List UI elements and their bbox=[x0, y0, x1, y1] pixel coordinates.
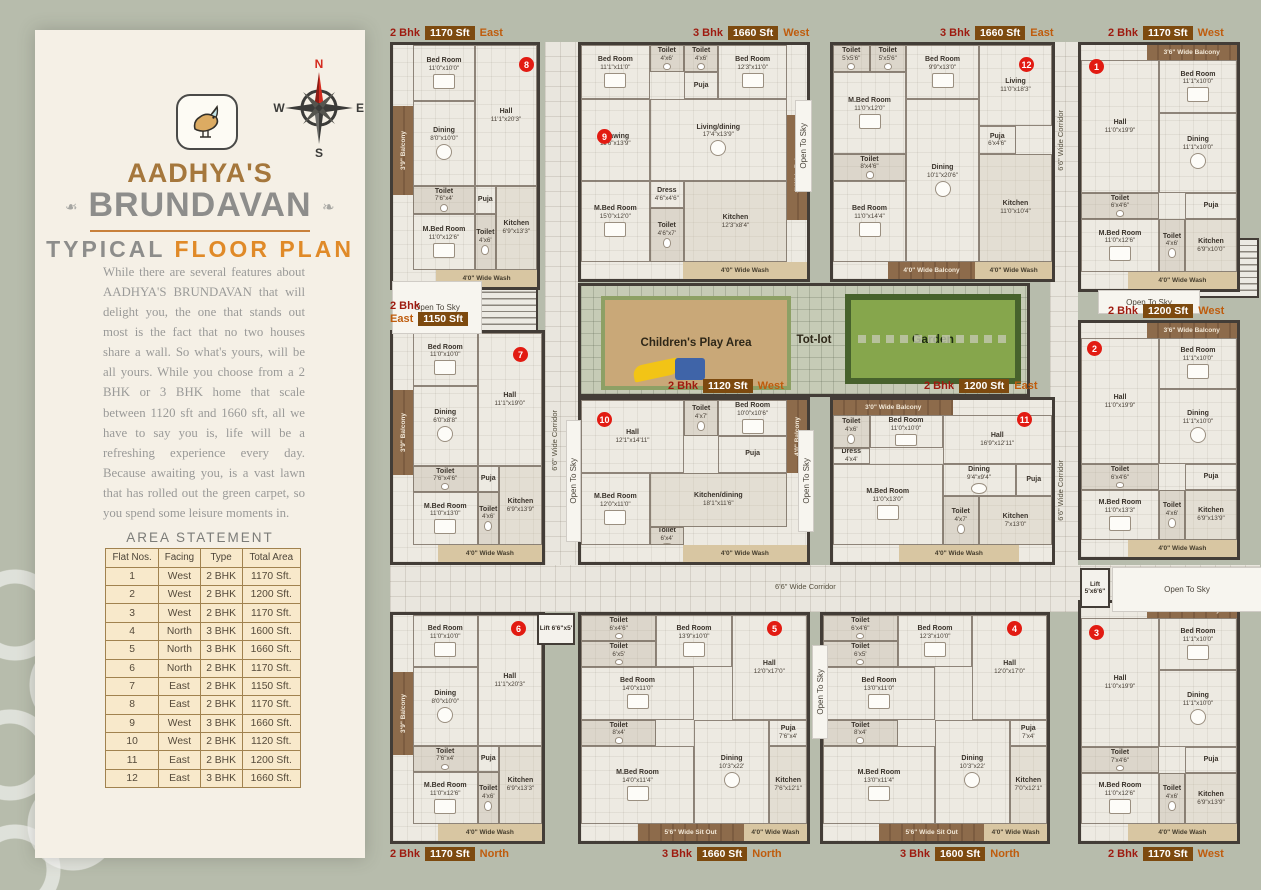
table-cell: 1200 Sft. bbox=[242, 751, 301, 769]
table-cell: 2 BHK bbox=[200, 677, 242, 695]
room-toilet: Toilet4'6"x7' bbox=[650, 208, 684, 262]
strip-label: 4'0" Wide Wash bbox=[992, 829, 1040, 836]
wash-strip: 4'0" Wide Wash bbox=[683, 262, 807, 279]
room-dining: Dining8'0"x10'0" bbox=[413, 667, 478, 745]
room-dimensions: 8'0"x10'0" bbox=[430, 135, 458, 142]
room-dimensions: 11'0"x12'6" bbox=[430, 790, 461, 797]
room-name: Puja bbox=[1026, 476, 1041, 484]
unit-area-badge: 1660 Sft bbox=[697, 847, 747, 861]
room-dimensions: 6'x4'6" bbox=[1111, 474, 1129, 481]
room-name: Dining bbox=[721, 755, 743, 763]
room-name: Puja bbox=[745, 450, 760, 458]
room-name: Toilet bbox=[860, 156, 878, 164]
room-toilet: Toilet4'x6' bbox=[1159, 219, 1185, 272]
flat-unit-8: 3'9" Balcony4'0" Wide WashBed Room11'0"x… bbox=[390, 42, 540, 290]
room-puja: Puja bbox=[718, 436, 787, 472]
room-dimensions: 11'0"x12'6" bbox=[429, 234, 460, 241]
room-dimensions: 4'x6' bbox=[482, 793, 495, 800]
table-cell: 2 BHK bbox=[200, 696, 242, 714]
room-name: Toilet bbox=[479, 506, 497, 514]
room-dimensions: 7'0"x12'1" bbox=[1015, 785, 1043, 792]
flat-unit-5: 5'6" Wide Sit Out4'0" Wide WashToilet6'x… bbox=[578, 612, 810, 844]
room-bed-room: Bed Room11'0"x10'0" bbox=[413, 615, 478, 667]
room-dimensions: 11'0"x12'6" bbox=[1105, 237, 1136, 244]
room-name: Bed Room bbox=[917, 625, 952, 633]
room-dimensions: 11'0"x12'6" bbox=[1105, 790, 1136, 797]
unit-label-7: 2 BhkEast1150 Sft bbox=[390, 300, 468, 326]
room-toilet: Toilet6'x4' bbox=[650, 527, 684, 545]
room-dimensions: 8'x4' bbox=[612, 729, 625, 736]
table-row: 1West2 BHK1170 Sft. bbox=[106, 567, 301, 585]
garden: Garden bbox=[845, 294, 1021, 384]
room-dimensions: 11'1"x10'0" bbox=[1183, 636, 1214, 643]
flat-unit-3: 3'6" Wide Balcony4'0" Wide WashHall11'0"… bbox=[1078, 600, 1240, 844]
room-bed-room: Bed Room10'0"x10'6" bbox=[718, 400, 787, 436]
room-name: Kitchen bbox=[1198, 791, 1224, 799]
room-name: Toilet bbox=[436, 468, 454, 476]
table-row: 6North2 BHK1170 Sft. bbox=[106, 659, 301, 677]
room-dimensions: 11'0"x13'0" bbox=[430, 510, 461, 517]
unit-label-6: 2 Bhk1170 SftNorth bbox=[390, 847, 509, 861]
room-name: Living/dining bbox=[697, 124, 741, 132]
room-name: Kitchen bbox=[1003, 200, 1029, 208]
table-row: 7East2 BHK1150 Sft. bbox=[106, 677, 301, 695]
unit-bhk: 3 Bhk bbox=[662, 848, 692, 860]
table-row: 8East2 BHK1170 Sft. bbox=[106, 696, 301, 714]
room-puja: Puja7'x4' bbox=[1010, 720, 1047, 746]
room-name: Bed Room bbox=[428, 344, 463, 352]
table-cell: 3 BHK bbox=[200, 622, 242, 640]
room-name: Puja bbox=[481, 475, 496, 483]
room-dimensions: 7'x4'6" bbox=[1111, 757, 1129, 764]
table-cell: West bbox=[159, 733, 200, 751]
unit-facing: West bbox=[1198, 305, 1224, 317]
room-drawing: Drawing11'6"x13'9" bbox=[581, 99, 650, 180]
strip-label: 5'6" Wide Sit Out bbox=[906, 829, 958, 836]
room-toilet: Toilet4'x7' bbox=[684, 400, 718, 436]
strip-label: 3'9" Balcony bbox=[400, 694, 407, 733]
room-name: Toilet bbox=[658, 222, 676, 230]
table-header-row: Flat Nos.FacingTypeTotal Area bbox=[106, 549, 301, 568]
table-row: 3West2 BHK1170 Sft. bbox=[106, 604, 301, 622]
childrens-play-area: Children's Play Area bbox=[601, 296, 791, 390]
strip-label: 4'0" Wide Wash bbox=[990, 267, 1038, 274]
strip-label: 4'0" Wide Wash bbox=[1158, 277, 1206, 284]
room-name: Bed Room bbox=[735, 402, 770, 410]
table-row: 4North3 BHK1600 Sft. bbox=[106, 622, 301, 640]
wash-strip: 4'0" Wide Wash bbox=[899, 545, 1019, 562]
table-cell: 2 BHK bbox=[200, 604, 242, 622]
wash-strip: 4'0" Wide Wash bbox=[1128, 824, 1237, 841]
table-cell: 2 bbox=[106, 586, 159, 604]
unit-facing: North bbox=[480, 848, 509, 860]
description-paragraph: While there are several features about A… bbox=[103, 262, 305, 523]
unit-bhk: 3 Bhk bbox=[900, 848, 930, 860]
room-m-bed-room: M.Bed Room15'0"x12'0" bbox=[581, 181, 650, 262]
room-dimensions: 9'4"x9'4" bbox=[967, 474, 991, 481]
unit-facing: North bbox=[752, 848, 781, 860]
room-name: Toilet bbox=[658, 527, 676, 535]
room-hall: Hall11'0"x19'9" bbox=[1081, 60, 1159, 193]
strip-label: 4'0" Wide Balcony bbox=[903, 267, 959, 274]
room-toilet: Toilet4'x6' bbox=[1159, 490, 1185, 541]
table-header-cell: Total Area bbox=[242, 549, 301, 568]
room-name: Puja bbox=[478, 196, 493, 204]
room-name: M.Bed Room bbox=[616, 769, 659, 777]
page-title: TYPICAL FLOOR PLAN bbox=[35, 236, 365, 263]
area-statement-title: AREA STATEMENT bbox=[35, 530, 365, 545]
table-cell: 7 bbox=[106, 677, 159, 695]
table-cell: 2 BHK bbox=[200, 586, 242, 604]
table-cell: 1170 Sft. bbox=[242, 567, 301, 585]
room-name: Bed Room bbox=[861, 677, 896, 685]
unit-label-5: 3 Bhk1660 SftNorth bbox=[662, 847, 782, 861]
strip-label: 5'6" Wide Sit Out bbox=[664, 829, 716, 836]
room-dimensions: 4'6"x4'6" bbox=[655, 195, 679, 202]
flat-number-badge: 1 bbox=[1089, 59, 1104, 74]
room-name: Dining bbox=[968, 466, 990, 474]
divider bbox=[90, 230, 310, 232]
room-name: Toilet bbox=[435, 188, 453, 196]
room-name: Toilet bbox=[692, 47, 710, 55]
room-dimensions: 6'9"x13'9" bbox=[1197, 515, 1225, 522]
brand-name-main: ❧ BRUNDAVAN ❧ bbox=[35, 186, 365, 225]
room-name: Kitchen bbox=[1198, 238, 1224, 246]
room-toilet: Toilet7'6"x4'6" bbox=[413, 466, 478, 493]
room-dimensions: 4'x6' bbox=[845, 426, 858, 433]
room-bed-room: Bed Room11'0"x10'0" bbox=[413, 45, 475, 101]
flat-number-badge: 12 bbox=[1019, 57, 1034, 72]
room-name: Kitchen/dining bbox=[694, 492, 743, 500]
flat-unit-7: 3'9" Balcony4'0" Wide WashBed Room11'0"x… bbox=[390, 330, 545, 565]
table-row: 10West2 BHK1120 Sft. bbox=[106, 733, 301, 751]
room-dimensions: 4'x7' bbox=[954, 516, 967, 523]
unit-label-8: 2 Bhk1170 SftEast bbox=[390, 26, 503, 40]
unit-facing: West bbox=[783, 27, 809, 39]
table-cell: 1 bbox=[106, 567, 159, 585]
room-dimensions: 6'x4'6" bbox=[988, 140, 1006, 147]
table-cell: 2 BHK bbox=[200, 733, 242, 751]
room-puja: Puja bbox=[1016, 464, 1053, 497]
room-dimensions: 14'0"x11'4" bbox=[622, 777, 653, 784]
flat-number-badge: 11 bbox=[1017, 412, 1032, 427]
unit-bhk: 2 Bhk bbox=[1108, 305, 1138, 317]
room-toilet: Toilet7'x4'6" bbox=[1081, 747, 1159, 773]
room-toilet: Toilet6'x5' bbox=[581, 641, 656, 667]
unit-bhk: 3 Bhk bbox=[940, 27, 970, 39]
room-dimensions: 12'0"x11'0" bbox=[600, 501, 631, 508]
unit-bhk: 2 Bhk bbox=[668, 380, 698, 392]
table-cell: West bbox=[159, 586, 200, 604]
strip-label: 4'0" Wide Wash bbox=[721, 550, 769, 557]
table-cell: 3 BHK bbox=[200, 769, 242, 787]
room-name: Bed Room bbox=[620, 677, 655, 685]
room-dimensions: 6'x4' bbox=[661, 535, 674, 542]
room-dimensions: 11'0"x18'3" bbox=[1000, 86, 1031, 93]
room-name: Bed Room bbox=[1181, 628, 1216, 636]
room-name: Hall bbox=[626, 429, 639, 437]
table-cell: 1120 Sft. bbox=[242, 733, 301, 751]
flat-unit-1: 3'6" Wide Balcony4'0" Wide WashHall11'0"… bbox=[1078, 42, 1240, 292]
svg-text:E: E bbox=[356, 101, 364, 115]
table-cell: 1660 Sft. bbox=[242, 714, 301, 732]
room-toilet: Toilet7'6"x4' bbox=[413, 746, 478, 772]
room-dining: Dining8'0"x10'0" bbox=[413, 101, 475, 185]
table-cell: 3 BHK bbox=[200, 641, 242, 659]
room-dimensions: 11'1"x20'3" bbox=[491, 116, 522, 123]
table-header-cell: Flat Nos. bbox=[106, 549, 159, 568]
room-name: Bed Room bbox=[735, 56, 770, 64]
room-name: Toilet bbox=[1163, 785, 1181, 793]
room-name: Bed Room bbox=[889, 417, 924, 425]
room-name: Hall bbox=[1114, 119, 1127, 127]
room-name: M.Bed Room bbox=[424, 782, 467, 790]
unit-label-1: 2 Bhk1170 SftWest bbox=[1108, 26, 1224, 40]
room-name: Toilet bbox=[1163, 502, 1181, 510]
room-m-bed-room: M.Bed Room11'0"x12'6" bbox=[1081, 773, 1159, 825]
room-dimensions: 11'0"x10'0" bbox=[430, 351, 461, 358]
room-kitchen: Kitchen12'3"x8'4" bbox=[684, 181, 787, 262]
room-dimensions: 6'x4'6" bbox=[851, 625, 869, 632]
room-name: Toilet bbox=[476, 229, 494, 237]
room-dimensions: 4'x6' bbox=[1166, 510, 1179, 517]
room-name: Dining bbox=[1187, 410, 1209, 418]
lift-b: Lift 5'x6'6" bbox=[1080, 568, 1110, 608]
unit-facing: North bbox=[990, 848, 1019, 860]
table-cell: 2 BHK bbox=[200, 567, 242, 585]
table-row: 2West2 BHK1200 Sft. bbox=[106, 586, 301, 604]
balcony-strip: 4'0" Wide Balcony bbox=[888, 262, 976, 279]
table-cell: 1660 Sft. bbox=[242, 769, 301, 787]
room-name: Puja bbox=[1204, 473, 1219, 481]
room-name: Toilet bbox=[851, 617, 869, 625]
room-puja: Puja6'x4'6" bbox=[979, 126, 1016, 153]
table-cell: 10 bbox=[106, 733, 159, 751]
room-name: M.Bed Room bbox=[866, 488, 909, 496]
room-dimensions: 6'9"x13'9" bbox=[507, 506, 535, 513]
room-bed-room: Bed Room11'1"x11'0" bbox=[581, 45, 650, 99]
room-m-bed-room: M.Bed Room11'0"x12'0" bbox=[833, 72, 906, 153]
svg-text:W: W bbox=[273, 101, 285, 115]
room-name: Dining bbox=[433, 127, 455, 135]
unit-bhk: 2 Bhk bbox=[390, 300, 420, 312]
room-name: Puja bbox=[781, 725, 796, 733]
room-bed-room: Bed Room11'1"x10'0" bbox=[1159, 618, 1237, 670]
unit-area-badge: 1120 Sft bbox=[703, 379, 753, 393]
room-dimensions: 6'9"x13'3" bbox=[503, 228, 531, 235]
strip-label: 4'0" Wide Wash bbox=[466, 550, 514, 557]
room-dimensions: 6'0"x8'8" bbox=[433, 417, 457, 424]
unit-facing: East bbox=[1030, 27, 1053, 39]
room-name: Toilet bbox=[952, 508, 970, 516]
table-cell: 1170 Sft. bbox=[242, 696, 301, 714]
room-toilet: Toilet4'x6' bbox=[833, 415, 870, 448]
flat-number-badge: 10 bbox=[597, 412, 612, 427]
unit-area-badge: 1660 Sft bbox=[975, 26, 1025, 40]
room-name: Dining bbox=[1187, 136, 1209, 144]
room-dress: Dress4'6"x4'6" bbox=[650, 181, 684, 208]
room-dimensions: 4'x6' bbox=[1166, 240, 1179, 247]
flat-number-badge: 6 bbox=[511, 621, 526, 636]
room-dimensions: 6'9"x13'3" bbox=[507, 785, 535, 792]
room-toilet: Toilet4'x6' bbox=[650, 45, 684, 72]
room-name: Toilet bbox=[692, 405, 710, 413]
room-dimensions: 12'3"x10'0" bbox=[919, 633, 950, 640]
room-name: Puja bbox=[1204, 756, 1219, 764]
unit-area-badge: 1600 Sft bbox=[935, 847, 985, 861]
room-name: Kitchen bbox=[775, 777, 801, 785]
room-dimensions: 4'x6' bbox=[482, 513, 495, 520]
room-name: Bed Room bbox=[676, 625, 711, 633]
unit-area-badge: 1170 Sft bbox=[425, 847, 475, 861]
svg-text:N: N bbox=[315, 58, 324, 71]
room-hall: Hall11'0"x19'9" bbox=[1081, 338, 1159, 464]
room-dimensions: 13'9"x10'0" bbox=[678, 633, 709, 640]
unit-area-badge: 1170 Sft bbox=[1143, 847, 1193, 861]
wash-strip: 4'0" Wide Wash bbox=[683, 545, 807, 562]
balcony-strip: 3'9" Balcony bbox=[393, 390, 413, 475]
room-kitchen: Kitchen7'0"x12'1" bbox=[1010, 746, 1047, 824]
room-dimensions: 11'1"x10'0" bbox=[1183, 418, 1214, 425]
room-bed-room: Bed Room9'9"x13'0" bbox=[906, 45, 979, 99]
room-kitchen: Kitchen7'x13'0" bbox=[979, 496, 1052, 545]
room-name: M.Bed Room bbox=[858, 769, 901, 777]
room-dimensions: 11'0"x13'0" bbox=[872, 496, 903, 503]
unit-area-badge: 1660 Sft bbox=[728, 26, 778, 40]
table-cell: West bbox=[159, 604, 200, 622]
room-puja: Puja bbox=[1185, 747, 1237, 773]
room-name: Dining bbox=[434, 690, 456, 698]
room-name: Bed Room bbox=[852, 205, 887, 213]
open-to-sky-label: Open To Sky bbox=[566, 420, 581, 542]
unit-label-10: 2 Bhk1120 SftWest bbox=[668, 379, 784, 393]
room-dimensions: 4'x6' bbox=[1166, 793, 1179, 800]
room-name: Bed Room bbox=[427, 57, 462, 65]
room-puja: Puja bbox=[475, 186, 496, 214]
bird-logo bbox=[176, 94, 238, 150]
room-dimensions: 11'1"x11'0" bbox=[600, 64, 630, 71]
room-bed-room: Bed Room11'0"x10'0" bbox=[870, 415, 943, 448]
room-dimensions: 6'9"x10'0" bbox=[1197, 246, 1225, 253]
room-dining: Dining9'4"x9'4" bbox=[943, 464, 1016, 497]
room-dimensions: 6'x5' bbox=[854, 651, 867, 658]
unit-bhk: 2 Bhk bbox=[390, 848, 420, 860]
table-cell: 3 BHK bbox=[200, 714, 242, 732]
flat-unit-11: 3'0" Wide Balcony4'0" Wide WashToilet4'x… bbox=[830, 397, 1055, 565]
room-name: M.Bed Room bbox=[1099, 230, 1142, 238]
room-kitchen-dining: Kitchen/dining18'1"x11'6" bbox=[650, 473, 787, 527]
room-dimensions: 11'1"x10'0" bbox=[1183, 144, 1214, 151]
room-toilet: Toilet4'x6' bbox=[478, 492, 500, 545]
corridor-label: 6'6" Wide Corridor bbox=[1056, 460, 1065, 521]
room-bed-room: Bed Room12'3"x11'0" bbox=[718, 45, 787, 99]
room-m-bed-room: M.Bed Room11'0"x13'3" bbox=[1081, 490, 1159, 541]
room-toilet: Toilet5'x5'6" bbox=[870, 45, 907, 72]
room-dimensions: 12'3"x11'0" bbox=[737, 64, 768, 71]
room-dress: Dress4'x4' bbox=[833, 448, 870, 464]
table-row: 12East3 BHK1660 Sft. bbox=[106, 769, 301, 787]
balcony-strip: 3'9" Balcony bbox=[393, 106, 413, 196]
unit-area-badge: 1200 Sft bbox=[1143, 304, 1193, 318]
room-toilet: Toilet6'x4'6" bbox=[581, 615, 656, 641]
sidebar: N S W E AADHYA'S ❧ BRUNDAVAN ❧ TYPICAL F… bbox=[35, 30, 365, 858]
svg-text:S: S bbox=[315, 146, 323, 158]
room-dimensions: 7'x4' bbox=[1022, 733, 1035, 740]
room-name: M.Bed Room bbox=[1099, 782, 1142, 790]
room-dimensions: 11'1"x20'3" bbox=[494, 681, 525, 688]
table-cell: North bbox=[159, 622, 200, 640]
room-name: Toilet bbox=[658, 47, 676, 55]
room-name: Kitchen bbox=[1198, 507, 1224, 515]
balcony-strip: 5'6" Wide Sit Out bbox=[879, 824, 984, 841]
room-toilet: Toilet4'x6' bbox=[478, 772, 500, 824]
room-name: Puja bbox=[990, 133, 1005, 141]
table-cell: 1170 Sft. bbox=[242, 604, 301, 622]
room-dimensions: 11'0"x10'0" bbox=[429, 65, 460, 72]
unit-area-badge: 1170 Sft bbox=[425, 26, 475, 40]
table-row: 9West3 BHK1660 Sft. bbox=[106, 714, 301, 732]
table-cell: 4 bbox=[106, 622, 159, 640]
brand-name-top: AADHYA'S bbox=[35, 158, 365, 189]
room-name: Toilet bbox=[1163, 233, 1181, 241]
compass-icon: N S W E bbox=[273, 58, 365, 158]
room-name: Toilet bbox=[842, 418, 860, 426]
room-name: Toilet bbox=[479, 785, 497, 793]
strip-label: 3'9" Balcony bbox=[400, 131, 407, 170]
strip-label: 4'0" Wide Wash bbox=[935, 550, 983, 557]
room-dimensions: 7'6"x4'6" bbox=[433, 475, 457, 482]
room-toilet: Toilet8'x4'6" bbox=[833, 154, 906, 181]
room-toilet: Toilet4'x6' bbox=[475, 214, 496, 270]
flat-unit-4: 5'6" Wide Sit Out4'0" Wide WashToilet6'x… bbox=[820, 612, 1050, 844]
room-puja: Puja bbox=[478, 466, 500, 493]
room-name: Toilet bbox=[879, 47, 897, 55]
room-puja: Puja bbox=[1185, 193, 1237, 220]
table-row: 11East2 BHK1200 Sft. bbox=[106, 751, 301, 769]
room-name: Toilet bbox=[610, 617, 628, 625]
room-dimensions: 6'9"x13'9" bbox=[1197, 799, 1225, 806]
room-name: Dining bbox=[1187, 692, 1209, 700]
room-dimensions: 4'x6' bbox=[479, 237, 492, 244]
corridor-label: 6'6" Wide Corridor bbox=[775, 582, 836, 591]
table-cell: East bbox=[159, 769, 200, 787]
room-bed-room: Bed Room11'0"x14'4" bbox=[833, 181, 906, 262]
room-bed-room: Bed Room13'9"x10'0" bbox=[656, 615, 731, 667]
unit-bhk: 2 Bhk bbox=[390, 27, 420, 39]
room-dimensions: 10'0"x10'6" bbox=[737, 410, 768, 417]
table-cell: 11 bbox=[106, 751, 159, 769]
wash-strip: 4'0" Wide Wash bbox=[984, 824, 1047, 841]
room-toilet: Toilet6'x5' bbox=[823, 641, 898, 667]
room-name: M.Bed Room bbox=[1099, 499, 1142, 507]
unit-label-2: 2 Bhk1200 SftWest bbox=[1108, 304, 1224, 318]
table-row: 5North3 BHK1660 Sft. bbox=[106, 641, 301, 659]
corridor-label: 6'6" Wide Corridor bbox=[550, 410, 559, 471]
room-m-bed-room: M.Bed Room11'0"x13'0" bbox=[833, 464, 943, 545]
corridor-label: 6'6" Wide Corridor bbox=[1056, 110, 1065, 171]
room-name: Dress bbox=[842, 448, 861, 456]
room-toilet: Toilet6'x4'6" bbox=[1081, 193, 1159, 220]
table-cell: 2 BHK bbox=[200, 659, 242, 677]
room-dimensions: 4'6"x7' bbox=[658, 230, 676, 237]
strip-label: 3'6" Wide Balcony bbox=[1164, 49, 1220, 56]
room-dimensions: 13'0"x11'4" bbox=[864, 777, 895, 784]
room-dimensions: 6'x4'6" bbox=[1111, 202, 1129, 209]
room-name: Puja bbox=[1204, 202, 1219, 210]
room-toilet: Toilet4'x6' bbox=[1159, 773, 1185, 825]
wash-strip: 4'0" Wide Wash bbox=[438, 545, 542, 562]
room-dimensions: 8'0"x10'0" bbox=[431, 698, 459, 705]
